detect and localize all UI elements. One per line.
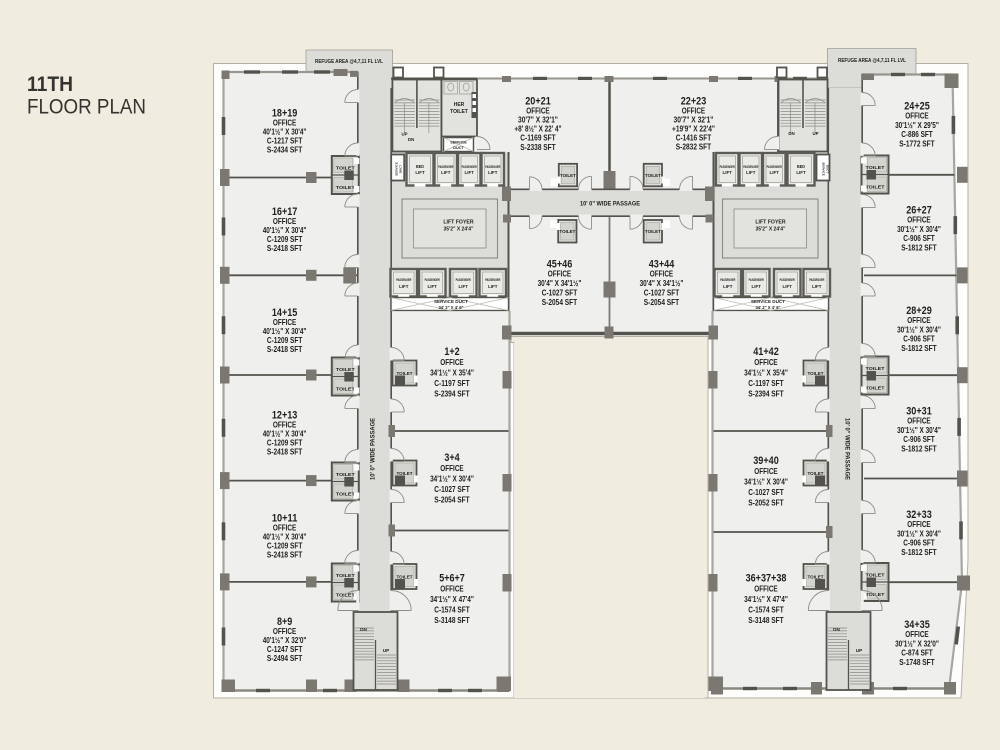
svg-text:C-1027 SFT: C-1027 SFT xyxy=(748,488,783,497)
svg-text:TOILET: TOILET xyxy=(336,185,355,190)
svg-text:TOILET: TOILET xyxy=(808,471,824,476)
svg-text:11TH: 11TH xyxy=(27,72,73,96)
svg-text:OFFICE: OFFICE xyxy=(907,216,931,225)
svg-text:30+31: 30+31 xyxy=(906,405,932,417)
svg-text:DUCT: DUCT xyxy=(399,165,403,174)
svg-text:OFFICE: OFFICE xyxy=(907,520,931,529)
svg-text:TOILET: TOILET xyxy=(397,371,413,376)
svg-text:30'7" X 32'1": 30'7" X 32'1" xyxy=(518,116,558,125)
svg-text:C-906 SFT: C-906 SFT xyxy=(903,435,935,444)
svg-text:30'4" X 34'1½": 30'4" X 34'1½" xyxy=(640,279,684,288)
svg-text:UP: UP xyxy=(383,648,389,653)
svg-text:30'7" X 32'1": 30'7" X 32'1" xyxy=(674,115,714,124)
svg-text:OFFICE: OFFICE xyxy=(650,270,674,279)
svg-text:OFFICE: OFFICE xyxy=(440,585,464,594)
svg-text:C-1209 SFT: C-1209 SFT xyxy=(267,336,302,345)
svg-text:32+33: 32+33 xyxy=(906,509,932,521)
svg-text:40'1½" X 30'4": 40'1½" X 30'4" xyxy=(263,127,307,136)
svg-text:34' 2" X 4' 6": 34' 2" X 4' 6" xyxy=(755,305,780,310)
svg-text:+8' 8½" X 22' 4": +8' 8½" X 22' 4" xyxy=(514,125,561,134)
svg-text:40'1½" X 30'4": 40'1½" X 30'4" xyxy=(263,327,307,336)
svg-text:LIFT: LIFT xyxy=(488,170,498,175)
svg-text:C-874 SFT: C-874 SFT xyxy=(901,649,933,658)
svg-text:OFFICE: OFFICE xyxy=(754,358,778,367)
svg-text:TOILET: TOILET xyxy=(397,575,413,580)
svg-text:39+40: 39+40 xyxy=(753,455,779,467)
svg-text:OFFICE: OFFICE xyxy=(907,417,931,426)
svg-text:30'1½" X 30'4": 30'1½" X 30'4" xyxy=(897,426,941,435)
svg-text:3+4: 3+4 xyxy=(444,452,459,464)
svg-text:PASSENGER: PASSENGER xyxy=(425,278,441,282)
svg-text:TOILET: TOILET xyxy=(866,185,885,190)
svg-text:PASSENGER: PASSENGER xyxy=(462,165,478,169)
svg-text:TOILET: TOILET xyxy=(336,573,355,578)
svg-text:43+44: 43+44 xyxy=(649,258,675,270)
svg-text:TOILET: TOILET xyxy=(866,592,885,597)
svg-text:SERVICE: SERVICE xyxy=(450,141,467,145)
svg-text:S-2054 SFT: S-2054 SFT xyxy=(644,298,679,307)
svg-text:C-906 SFT: C-906 SFT xyxy=(903,539,935,548)
svg-text:LIFT: LIFT xyxy=(723,284,733,289)
svg-text:LIFT: LIFT xyxy=(488,284,498,289)
svg-text:C-906 SFT: C-906 SFT xyxy=(903,234,935,243)
svg-text:PASSENGER: PASSENGER xyxy=(809,278,825,282)
svg-text:TOILET: TOILET xyxy=(866,573,885,578)
svg-text:S-3148 SFT: S-3148 SFT xyxy=(434,616,469,625)
svg-text:S-3148 SFT: S-3148 SFT xyxy=(748,616,783,625)
svg-text:LIFT: LIFT xyxy=(770,170,780,175)
svg-text:DN: DN xyxy=(788,131,794,136)
svg-text:30'4" X 34'1½": 30'4" X 34'1½" xyxy=(538,279,582,288)
svg-text:OFFICE: OFFICE xyxy=(905,630,929,639)
svg-text:PASSENGER: PASSENGER xyxy=(743,165,759,169)
svg-text:TOILET: TOILET xyxy=(808,371,824,376)
svg-text:C-886 SFT: C-886 SFT xyxy=(901,130,933,139)
svg-text:OFFICE: OFFICE xyxy=(273,118,297,127)
svg-text:34'1½" X 47'4": 34'1½" X 47'4" xyxy=(430,595,474,604)
svg-text:LIFT: LIFT xyxy=(459,284,469,289)
svg-text:SERVICE DUCT: SERVICE DUCT xyxy=(751,299,785,304)
svg-text:10' 0" WIDE PASSAGE: 10' 0" WIDE PASSAGE xyxy=(580,201,640,208)
svg-text:TOILET: TOILET xyxy=(808,575,824,580)
svg-text:TOILET: TOILET xyxy=(866,165,885,170)
svg-text:REFUGE AREA @4,7,11 FL LVL: REFUGE AREA @4,7,11 FL LVL xyxy=(838,58,907,64)
svg-text:TOILET: TOILET xyxy=(336,367,355,372)
svg-text:SERVICE DUCT: SERVICE DUCT xyxy=(434,299,468,304)
svg-text:DUCT: DUCT xyxy=(453,146,464,150)
svg-text:OFFICE: OFFICE xyxy=(548,270,572,279)
svg-text:BED: BED xyxy=(797,164,805,169)
svg-text:40'1½" X 32'0": 40'1½" X 32'0" xyxy=(263,636,307,645)
svg-text:S-2394 SFT: S-2394 SFT xyxy=(434,389,469,398)
svg-text:C-1027 SFT: C-1027 SFT xyxy=(644,289,679,298)
svg-text:PASSENGER: PASSENGER xyxy=(780,278,796,282)
svg-text:LIFT: LIFT xyxy=(796,170,806,175)
svg-text:C-1169 SFT: C-1169 SFT xyxy=(520,134,555,143)
svg-text:OFFICE: OFFICE xyxy=(440,358,464,367)
svg-text:OFFICE: OFFICE xyxy=(273,217,297,226)
svg-text:HER: HER xyxy=(454,102,465,108)
svg-text:TOILET: TOILET xyxy=(336,387,355,392)
svg-text:OFFICE: OFFICE xyxy=(754,467,778,476)
svg-text:BED: BED xyxy=(416,164,424,169)
svg-text:S-2054 SFT: S-2054 SFT xyxy=(434,495,469,504)
svg-text:OFFICE: OFFICE xyxy=(526,106,550,115)
svg-text:C-1217 SFT: C-1217 SFT xyxy=(267,136,302,145)
svg-text:PASSENGER: PASSENGER xyxy=(749,278,765,282)
svg-text:34' 2" X 4' 6": 34' 2" X 4' 6" xyxy=(438,305,463,310)
svg-text:C-1197 SFT: C-1197 SFT xyxy=(748,379,783,388)
svg-text:FLOOR PLAN: FLOOR PLAN xyxy=(27,95,146,119)
svg-text:PASSENGER: PASSENGER xyxy=(396,278,412,282)
svg-text:OFFICE: OFFICE xyxy=(754,585,778,594)
svg-text:PASSENGER: PASSENGER xyxy=(720,165,736,169)
svg-text:REFUGE AREA @4,7,11 FL LVL: REFUGE AREA @4,7,11 FL LVL xyxy=(315,59,384,65)
svg-text:TOILET: TOILET xyxy=(866,386,885,391)
svg-text:OFFICE: OFFICE xyxy=(440,464,464,473)
svg-text:OFFICE: OFFICE xyxy=(273,420,297,429)
svg-text:DN: DN xyxy=(360,627,367,632)
svg-text:TOILET: TOILET xyxy=(336,472,355,477)
svg-text:S-2054 SFT: S-2054 SFT xyxy=(542,298,577,307)
svg-text:TOILET: TOILET xyxy=(645,229,661,234)
svg-text:UP: UP xyxy=(401,132,407,137)
svg-text:36+37+38: 36+37+38 xyxy=(746,572,787,584)
svg-text:TOILET: TOILET xyxy=(450,109,468,115)
svg-text:DUCT: DUCT xyxy=(826,165,830,174)
svg-text:S-1812 SFT: S-1812 SFT xyxy=(901,548,936,557)
svg-text:LIFT: LIFT xyxy=(428,284,438,289)
svg-text:LIFT: LIFT xyxy=(752,284,762,289)
svg-text:C-1574 SFT: C-1574 SFT xyxy=(434,606,469,615)
svg-text:34'1½" X 47'4": 34'1½" X 47'4" xyxy=(744,595,788,604)
svg-text:S-2434 SFT: S-2434 SFT xyxy=(267,145,302,154)
svg-text:S-1772 SFT: S-1772 SFT xyxy=(899,140,934,149)
svg-text:C-1027 SFT: C-1027 SFT xyxy=(434,485,469,494)
svg-text:LIFT: LIFT xyxy=(783,284,793,289)
svg-text:30'1½" X 30'4": 30'1½" X 30'4" xyxy=(897,325,941,334)
svg-text:OFFICE: OFFICE xyxy=(273,627,297,636)
svg-text:PASSENGER: PASSENGER xyxy=(767,165,783,169)
svg-text:C-906 SFT: C-906 SFT xyxy=(903,335,935,344)
svg-text:40'1½" X 30'4": 40'1½" X 30'4" xyxy=(263,226,307,235)
svg-text:S-1812 SFT: S-1812 SFT xyxy=(901,344,936,353)
svg-text:30'1½" X 32'0": 30'1½" X 32'0" xyxy=(895,639,939,648)
svg-text:LIFT: LIFT xyxy=(812,284,822,289)
svg-text:C-1416 SFT: C-1416 SFT xyxy=(676,133,711,142)
svg-text:TOILET: TOILET xyxy=(645,173,661,178)
svg-text:OFFICE: OFFICE xyxy=(273,523,297,532)
svg-text:OFFICE: OFFICE xyxy=(907,316,931,325)
svg-text:40'1½" X 30'4": 40'1½" X 30'4" xyxy=(263,429,307,438)
svg-text:LIFT: LIFT xyxy=(746,170,756,175)
svg-text:30'1½" X 30'4": 30'1½" X 30'4" xyxy=(897,225,941,234)
svg-text:DN: DN xyxy=(833,627,840,632)
svg-text:C-1027 SFT: C-1027 SFT xyxy=(542,289,577,298)
svg-text:34'1½" X 30'4": 34'1½" X 30'4" xyxy=(430,475,474,484)
svg-text:24+25: 24+25 xyxy=(904,100,930,112)
svg-text:PASSENGER: PASSENGER xyxy=(438,165,454,169)
svg-text:OFFICE: OFFICE xyxy=(905,112,929,121)
svg-text:S-2418 SFT: S-2418 SFT xyxy=(267,447,302,456)
svg-text:35'2" X 24'4": 35'2" X 24'4" xyxy=(756,227,787,233)
svg-text:S-2394 SFT: S-2394 SFT xyxy=(748,389,783,398)
svg-text:C-1209 SFT: C-1209 SFT xyxy=(267,541,302,550)
svg-text:SERVICE: SERVICE xyxy=(822,162,826,176)
svg-text:TOILET: TOILET xyxy=(559,229,575,234)
svg-text:S-2832 SFT: S-2832 SFT xyxy=(676,142,711,151)
svg-text:PASSENGER: PASSENGER xyxy=(485,165,501,169)
svg-text:45+46: 45+46 xyxy=(547,258,573,270)
svg-text:+19'9" X 22'4": +19'9" X 22'4" xyxy=(672,124,715,133)
svg-text:C-1209 SFT: C-1209 SFT xyxy=(267,235,302,244)
svg-text:LIFT FOYER: LIFT FOYER xyxy=(443,220,474,226)
svg-text:PASSENGER: PASSENGER xyxy=(456,278,472,282)
svg-text:10' 0" WIDE PASSAGE: 10' 0" WIDE PASSAGE xyxy=(371,418,377,480)
svg-text:28+29: 28+29 xyxy=(906,305,932,317)
svg-text:C-1247 SFT: C-1247 SFT xyxy=(267,645,302,654)
svg-text:LIFT: LIFT xyxy=(415,170,425,175)
svg-text:UP: UP xyxy=(812,131,818,136)
svg-text:TOILET: TOILET xyxy=(336,492,355,497)
svg-text:LIFT: LIFT xyxy=(441,170,451,175)
svg-text:41+42: 41+42 xyxy=(753,346,779,358)
svg-text:C-1197 SFT: C-1197 SFT xyxy=(434,379,469,388)
svg-text:TOILET: TOILET xyxy=(560,173,576,178)
svg-text:OFFICE: OFFICE xyxy=(682,106,706,115)
svg-text:PASSENGER: PASSENGER xyxy=(720,278,736,282)
svg-text:30'1½" X 29'5": 30'1½" X 29'5" xyxy=(895,121,939,130)
svg-text:LIFT: LIFT xyxy=(723,170,733,175)
svg-text:34'1½" X 35'4": 34'1½" X 35'4" xyxy=(430,369,474,378)
svg-text:34'1½" X 35'4": 34'1½" X 35'4" xyxy=(744,369,788,378)
svg-text:C-1574 SFT: C-1574 SFT xyxy=(748,606,783,615)
svg-text:DN: DN xyxy=(408,137,414,142)
svg-text:S-2418 SFT: S-2418 SFT xyxy=(267,550,302,559)
svg-text:LIFT FOYER: LIFT FOYER xyxy=(755,220,786,226)
svg-text:5+6+7: 5+6+7 xyxy=(439,572,465,584)
svg-text:C-1209 SFT: C-1209 SFT xyxy=(267,438,302,447)
svg-text:34'1½" X 30'4": 34'1½" X 30'4" xyxy=(744,478,788,487)
svg-text:10' 0" WIDE PASSAGE: 10' 0" WIDE PASSAGE xyxy=(844,418,850,480)
svg-text:S-1748 SFT: S-1748 SFT xyxy=(899,658,934,667)
svg-text:1+2: 1+2 xyxy=(444,346,459,358)
svg-text:S-1812 SFT: S-1812 SFT xyxy=(901,244,936,253)
svg-text:TOILET: TOILET xyxy=(336,166,355,171)
svg-text:S-2418 SFT: S-2418 SFT xyxy=(267,244,302,253)
svg-text:S-2338 SFT: S-2338 SFT xyxy=(520,143,555,152)
svg-text:40'1½" X 30'4": 40'1½" X 30'4" xyxy=(263,532,307,541)
svg-text:UP: UP xyxy=(856,648,862,653)
svg-text:34+35: 34+35 xyxy=(904,619,930,631)
svg-text:S-2418 SFT: S-2418 SFT xyxy=(267,345,302,354)
svg-text:S-2052 SFT: S-2052 SFT xyxy=(748,498,783,507)
svg-text:30'1½" X 30'4": 30'1½" X 30'4" xyxy=(897,529,941,538)
svg-text:LIFT: LIFT xyxy=(399,284,409,289)
svg-text:LIFT: LIFT xyxy=(465,170,475,175)
svg-text:S-1812 SFT: S-1812 SFT xyxy=(901,445,936,454)
svg-text:TOILET: TOILET xyxy=(397,471,413,476)
svg-text:26+27: 26+27 xyxy=(906,204,932,216)
svg-text:TOILET: TOILET xyxy=(866,366,885,371)
svg-text:S-2494 SFT: S-2494 SFT xyxy=(267,654,302,663)
svg-text:35'2" X 24'4": 35'2" X 24'4" xyxy=(444,227,475,233)
svg-text:PASSENGER: PASSENGER xyxy=(485,278,501,282)
svg-text:OFFICE: OFFICE xyxy=(273,318,297,327)
